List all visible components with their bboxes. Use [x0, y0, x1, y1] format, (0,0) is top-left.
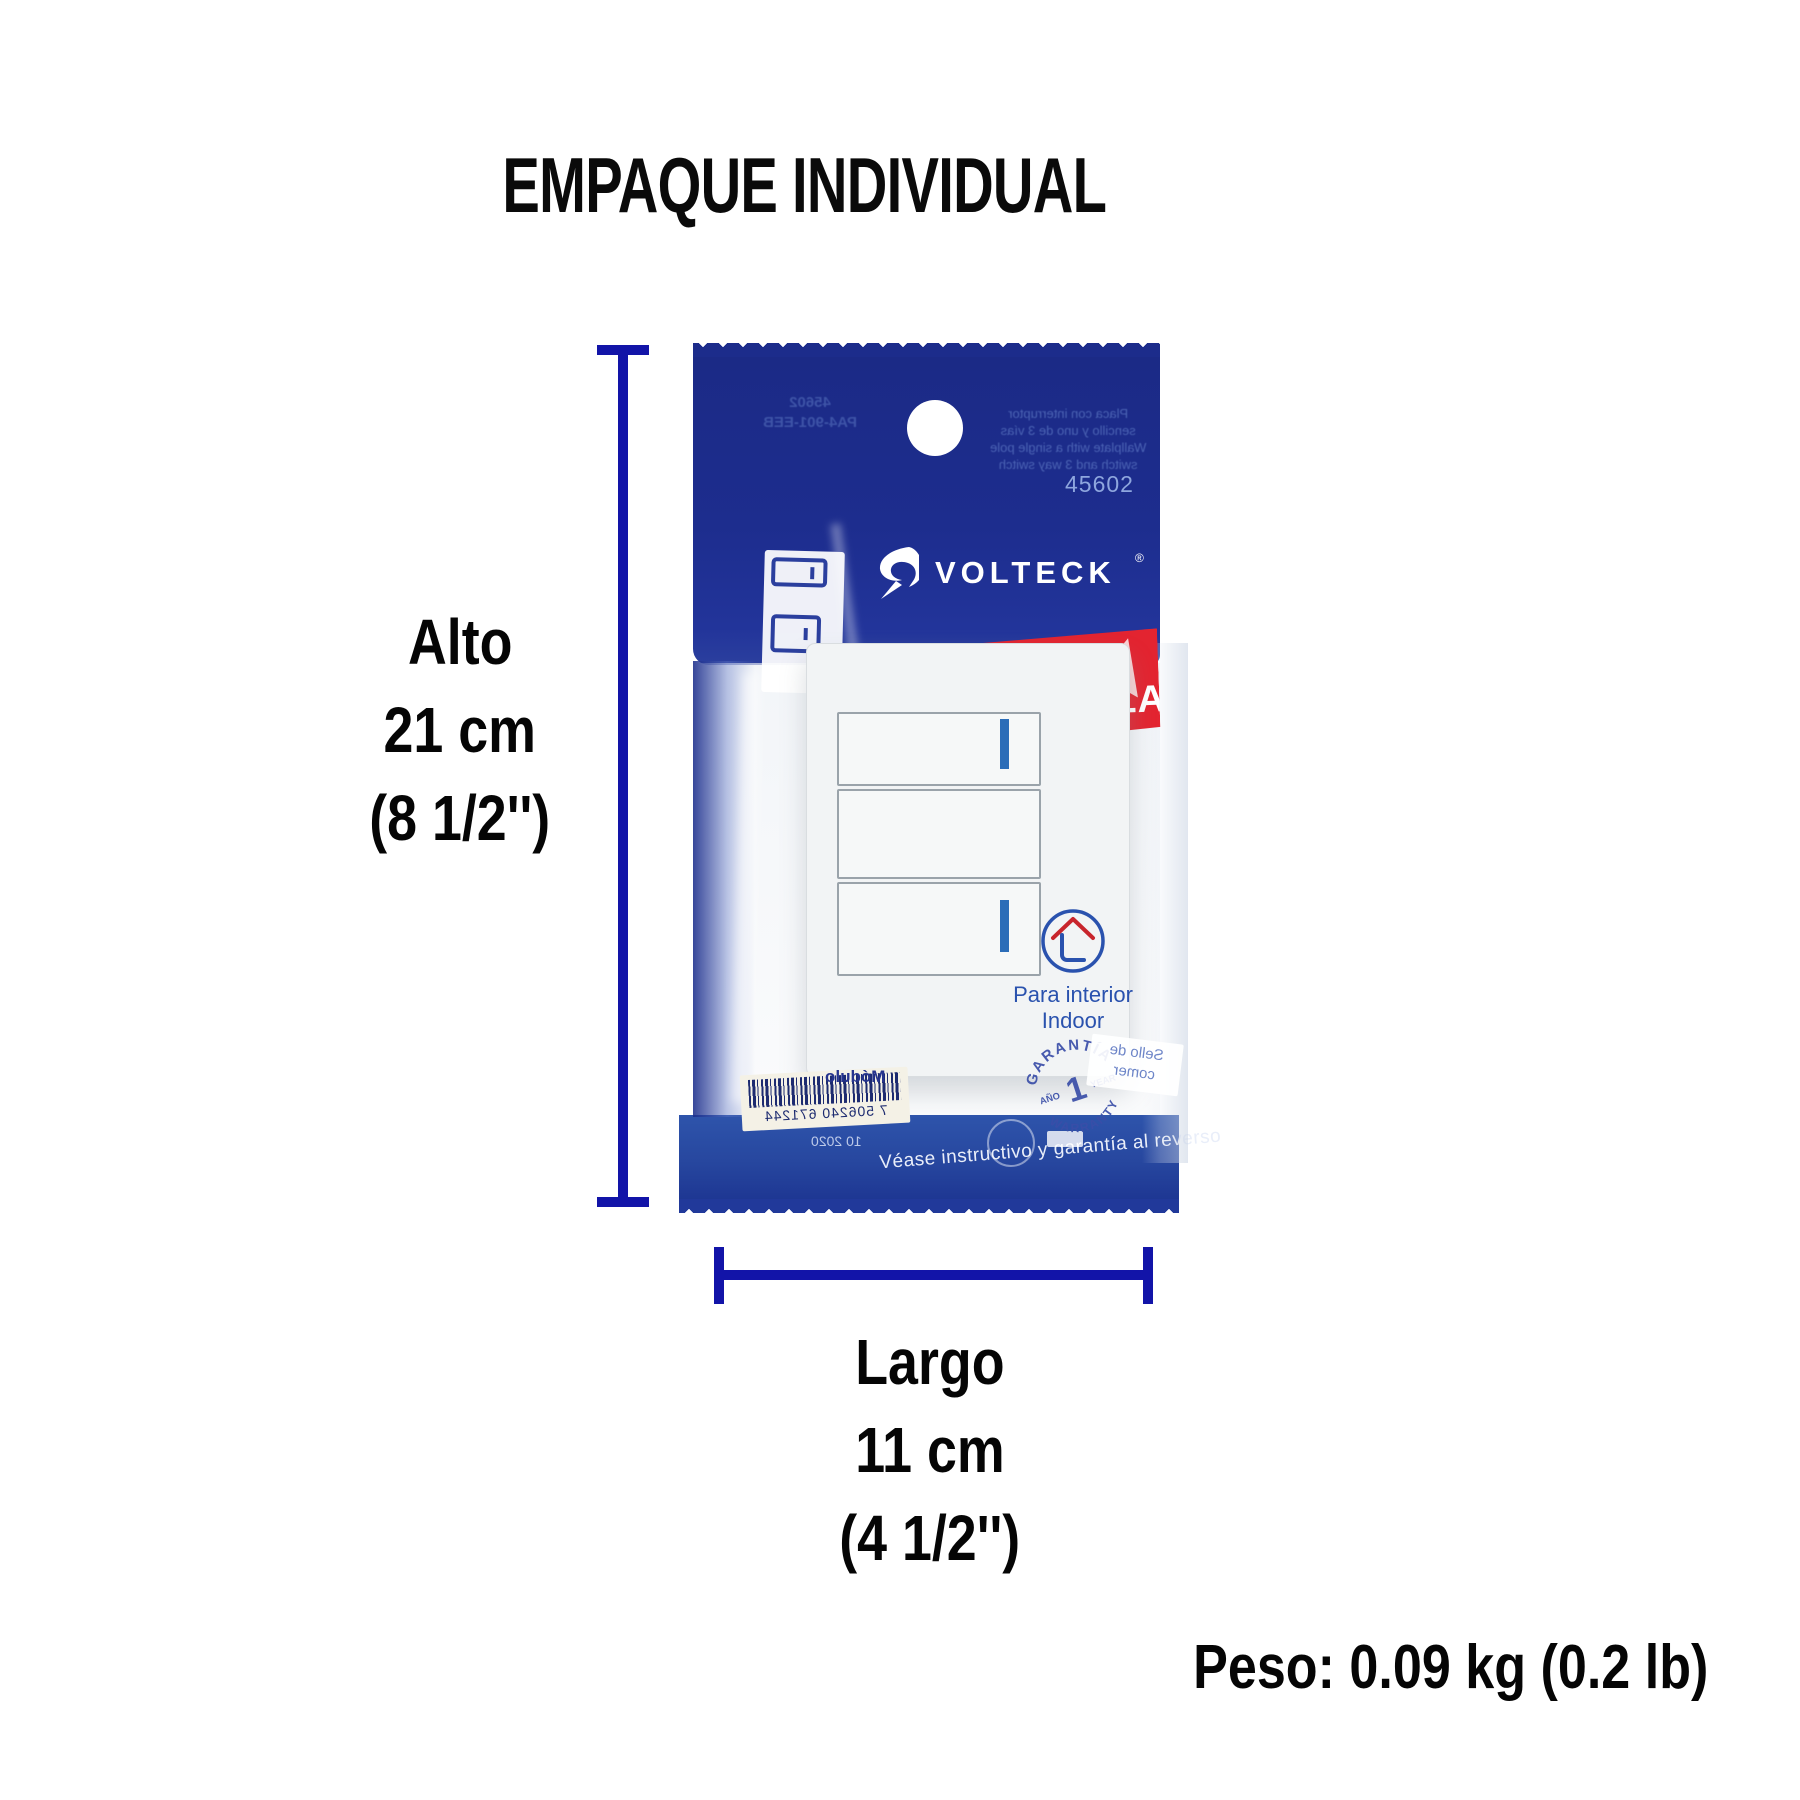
warranty-ano: AÑO: [1038, 1091, 1061, 1107]
length-dimension-left-cap: [714, 1247, 724, 1304]
back-print-description: Placa con interruptor sencillo y uno de …: [983, 405, 1153, 473]
volteck-bolt-icon: [873, 545, 919, 601]
certification-stamp-icon: [987, 1119, 1035, 1167]
barcode-caption: Módulo: [825, 1067, 885, 1087]
indoor-mark: Para interior Indoor: [993, 903, 1153, 1034]
height-label-group: Alto 21 cm (8 1/2''): [310, 598, 610, 862]
height-value: 21 cm: [384, 686, 536, 774]
rocker-switch: [837, 789, 1041, 879]
back-print-code: 45602 PA4-901-EEB: [755, 393, 865, 433]
brand-name: VOLTECK: [935, 555, 1116, 591]
length-dimension-line: [719, 1270, 1153, 1280]
weight-label: Peso:: [1193, 1633, 1335, 1702]
weight-value: 0.09 kg (0.2 lb): [1335, 1633, 1708, 1702]
brand-logo: VOLTECK ®: [873, 545, 1153, 607]
indicator-bar: [1000, 719, 1009, 769]
height-dimension-top-cap: [597, 345, 649, 355]
product-package: Véase instructivo y garantía al reverso …: [693, 343, 1160, 1215]
hang-hole: [907, 400, 963, 456]
height-dimension-line: [618, 350, 628, 1202]
switch-icon: [771, 557, 828, 587]
height-dimension-bottom-cap: [597, 1197, 649, 1207]
registered-mark: ®: [1135, 551, 1144, 565]
indoor-house-icon: [1036, 903, 1110, 977]
height-inches: (8 1/2''): [370, 774, 551, 862]
length-label: Largo: [855, 1318, 1004, 1406]
length-value: 11 cm: [855, 1406, 1004, 1494]
length-dimension-right-cap: [1143, 1247, 1153, 1304]
sku-code: 45602: [1065, 471, 1134, 498]
bag-top-zigzag-edge: [693, 343, 1160, 357]
page-title-text: EMPAQUE INDIVIDUAL: [502, 140, 1106, 231]
barcode-date: 10 2020: [811, 1133, 862, 1149]
height-label: Alto: [408, 598, 513, 686]
bag-bottom-zigzag-edge: [679, 1199, 1179, 1213]
length-label-group: Largo 11 cm (4 1/2''): [740, 1318, 1120, 1582]
weight-line: Peso: 0.09 kg (0.2 lb): [1095, 1632, 1708, 1703]
length-inches: (4 1/2''): [840, 1494, 1021, 1582]
page-title: EMPAQUE INDIVIDUAL: [385, 140, 1185, 231]
seal-label: Sello decomer: [1086, 1034, 1184, 1097]
indoor-label-es: Para interior: [993, 982, 1153, 1008]
rocker-switch: [837, 712, 1041, 786]
